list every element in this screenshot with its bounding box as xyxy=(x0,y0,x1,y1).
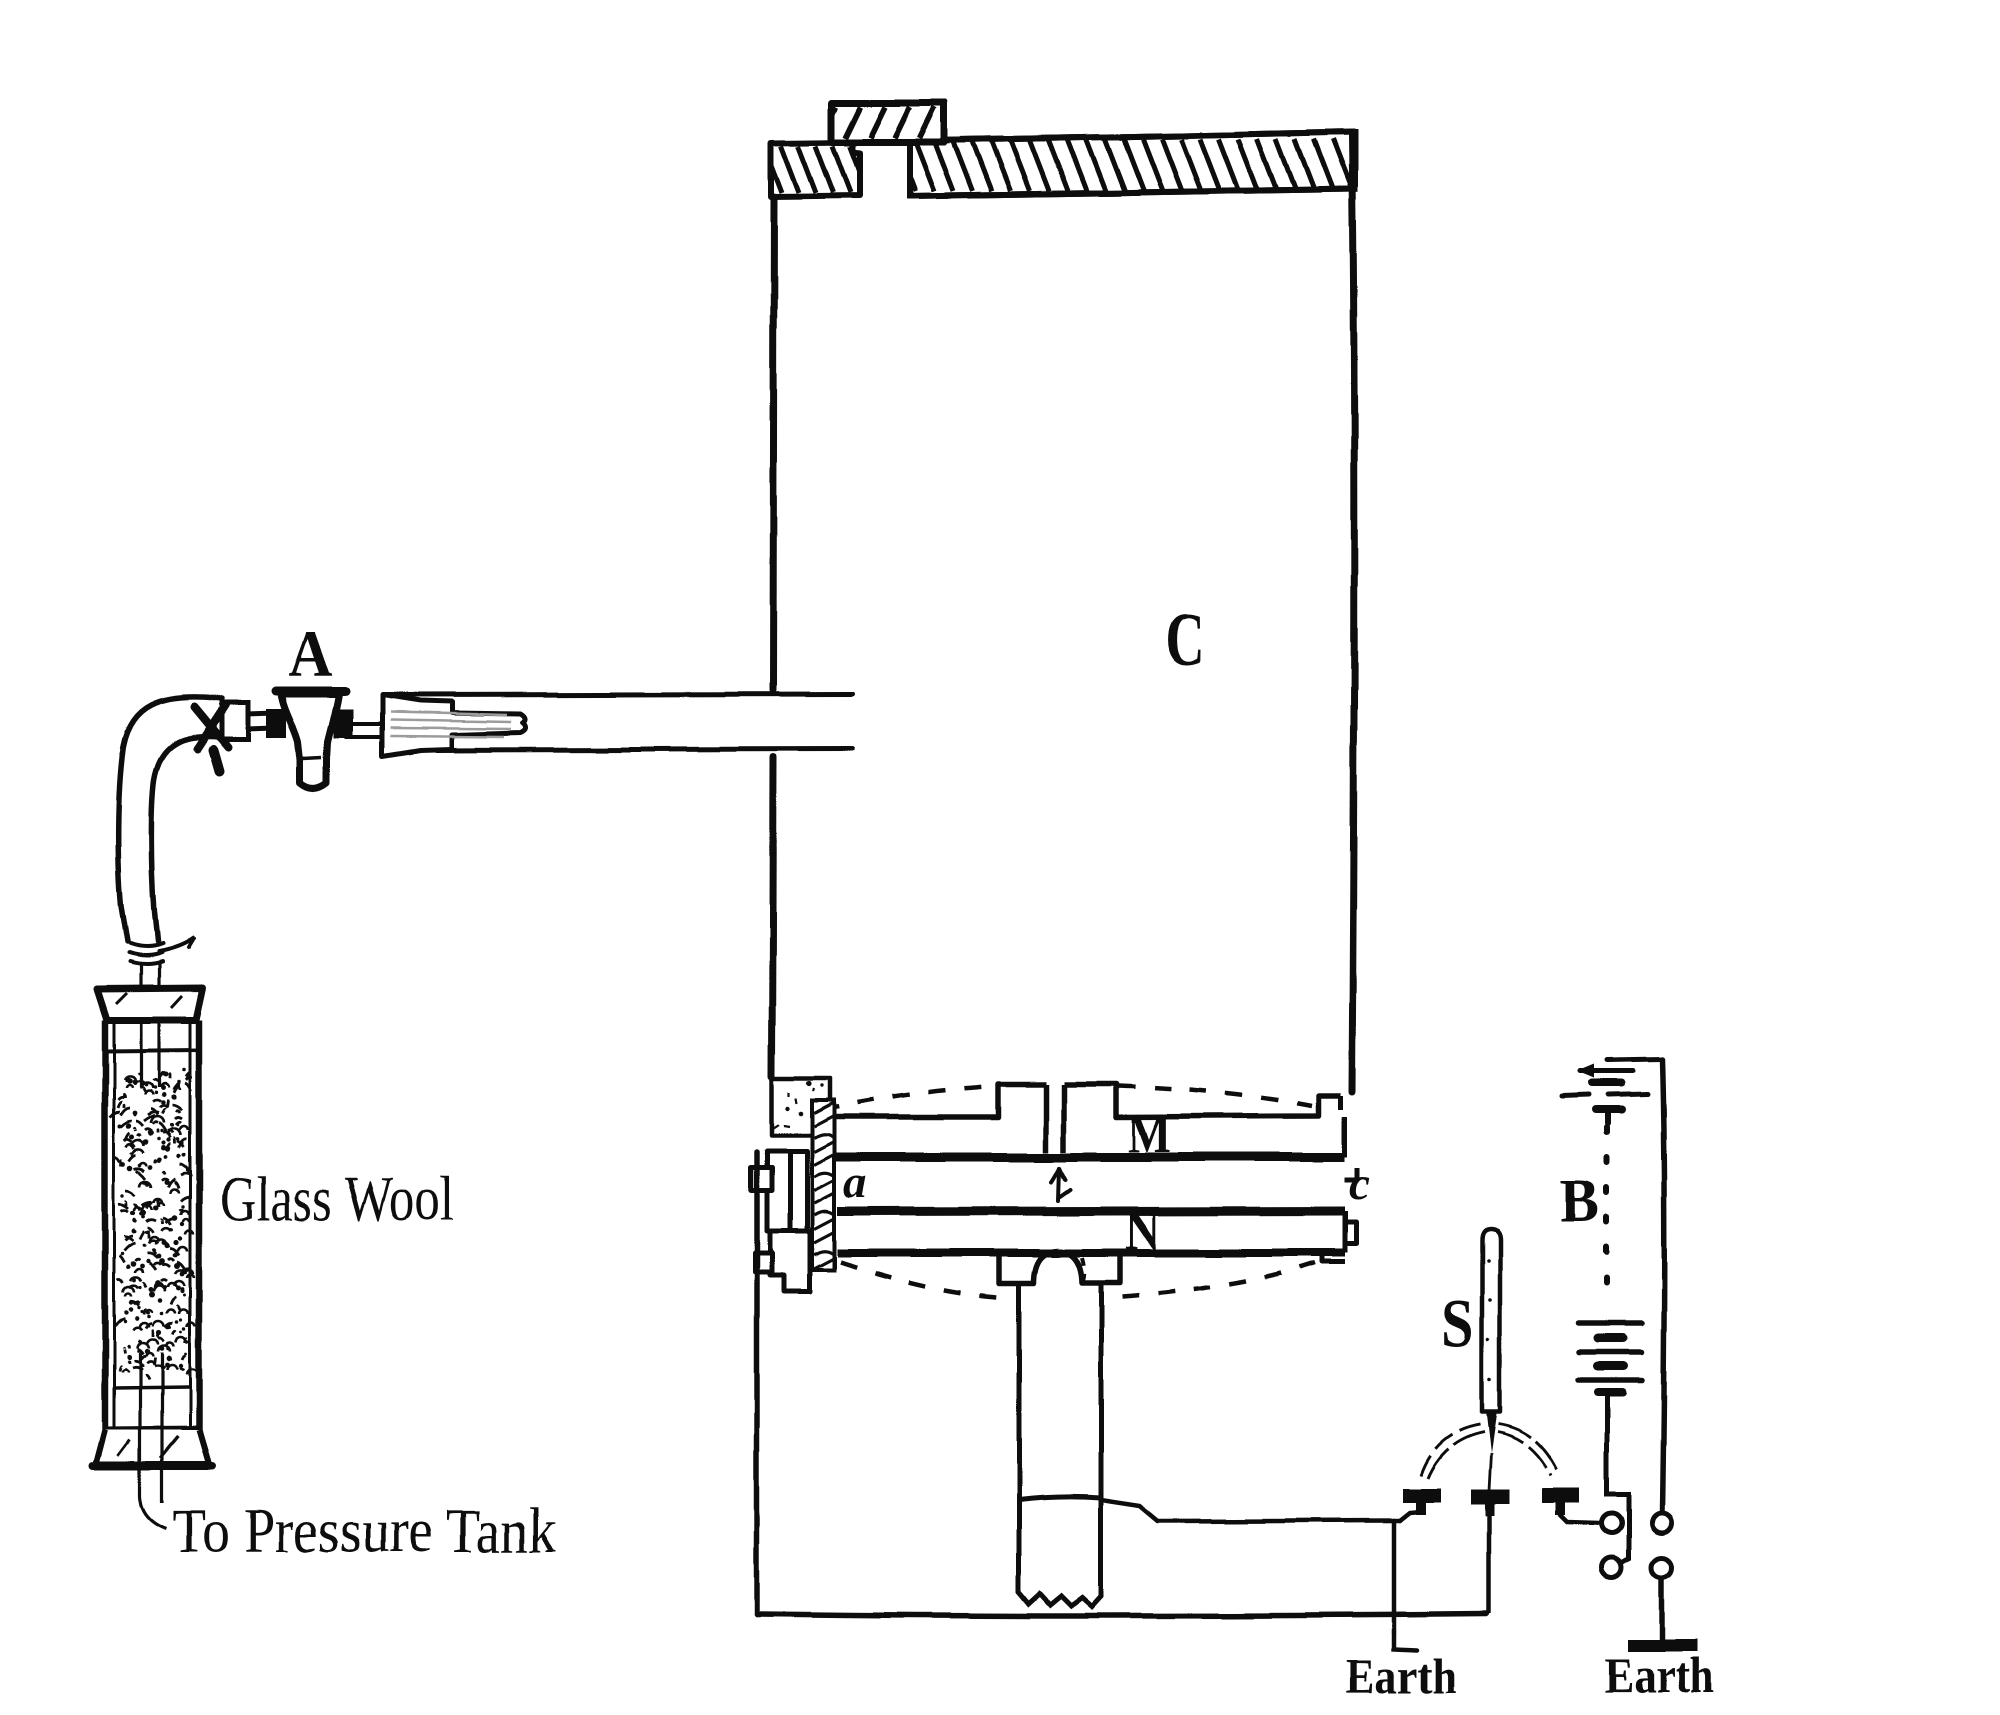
svg-text:c: c xyxy=(1349,1158,1370,1210)
svg-text:Earth: Earth xyxy=(1346,1647,1456,1703)
svg-text:S: S xyxy=(1441,1286,1474,1363)
svg-text:C: C xyxy=(1166,599,1204,681)
svg-text:a: a xyxy=(843,1157,867,1209)
svg-text:Glass Wool: Glass Wool xyxy=(220,1163,454,1234)
svg-text:Earth: Earth xyxy=(1604,1647,1714,1703)
svg-text:To Pressure Tank: To Pressure Tank xyxy=(172,1495,556,1566)
svg-text:A: A xyxy=(288,618,332,691)
svg-text:B: B xyxy=(1560,1168,1600,1236)
svg-text:M: M xyxy=(1127,1104,1170,1164)
svg-text:N: N xyxy=(1125,1201,1160,1261)
